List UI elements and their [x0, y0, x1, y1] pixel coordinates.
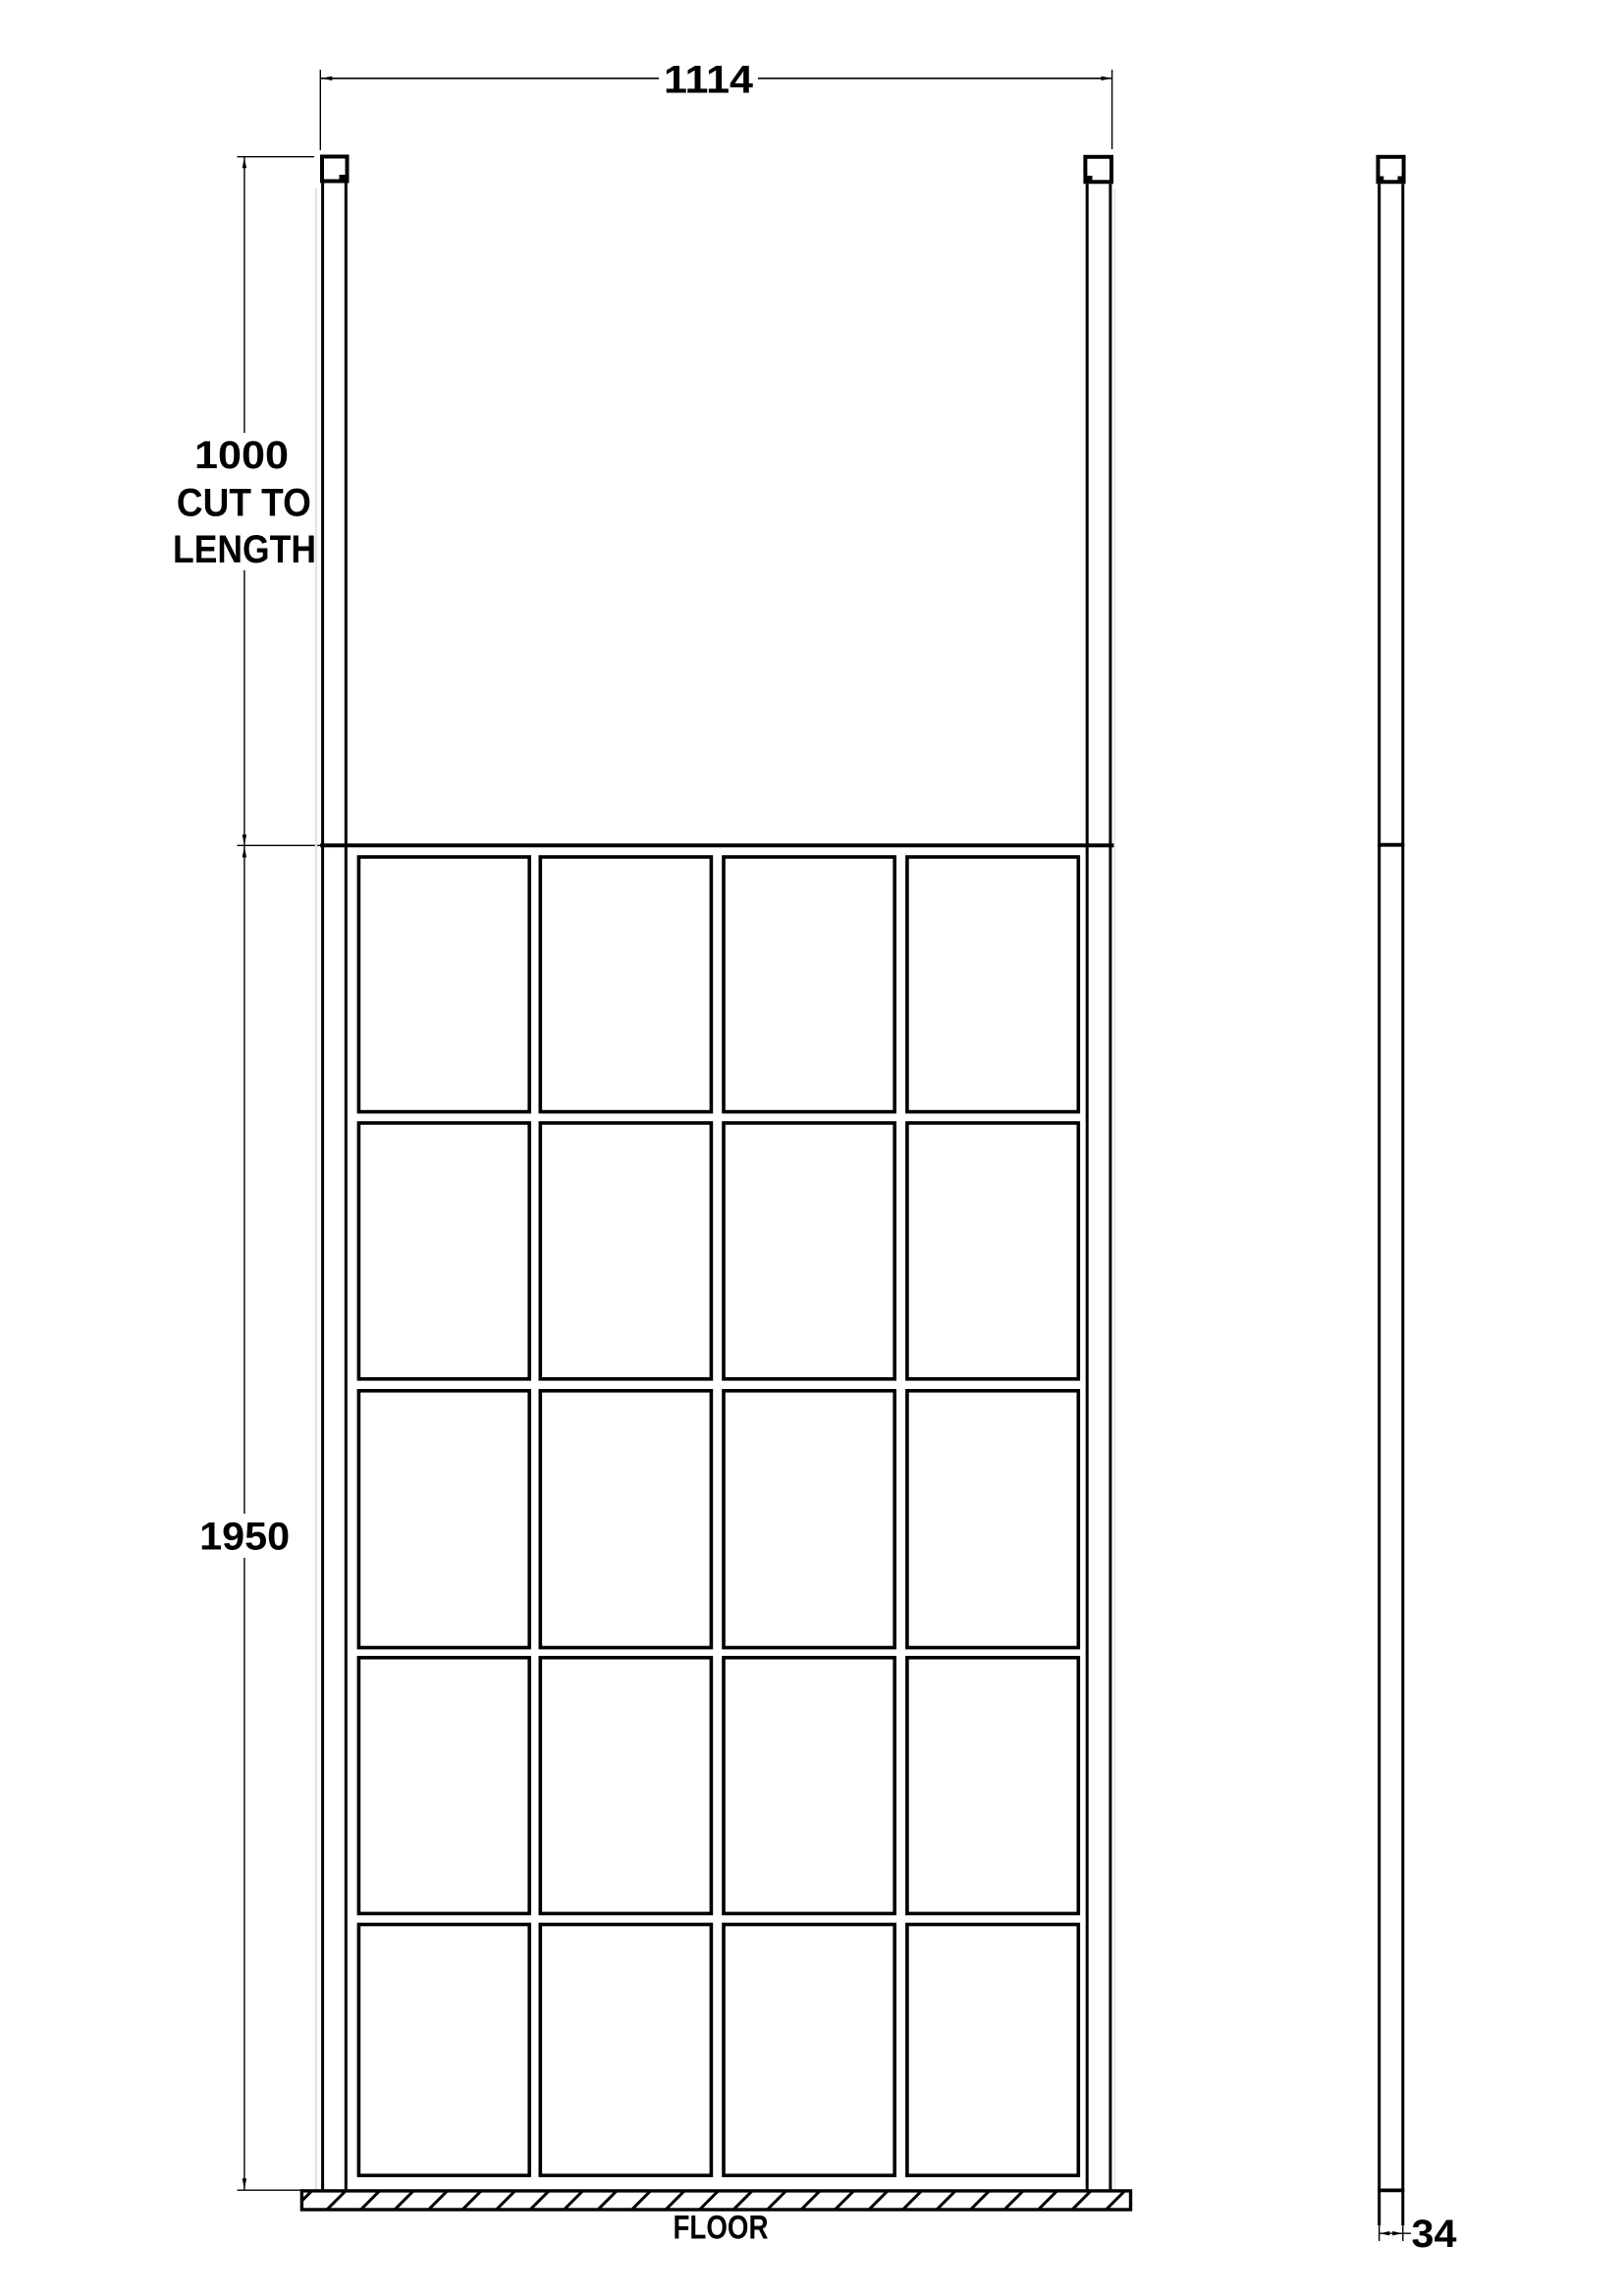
svg-text:1000: 1000: [194, 434, 289, 477]
svg-text:CUT TO: CUT TO: [177, 481, 311, 524]
svg-text:LENGTH: LENGTH: [173, 528, 316, 571]
svg-text:34: 34: [1412, 2213, 1458, 2256]
svg-text:1114: 1114: [664, 59, 754, 102]
svg-text:1950: 1950: [199, 1516, 290, 1559]
svg-text:FLOOR: FLOOR: [674, 2210, 769, 2247]
